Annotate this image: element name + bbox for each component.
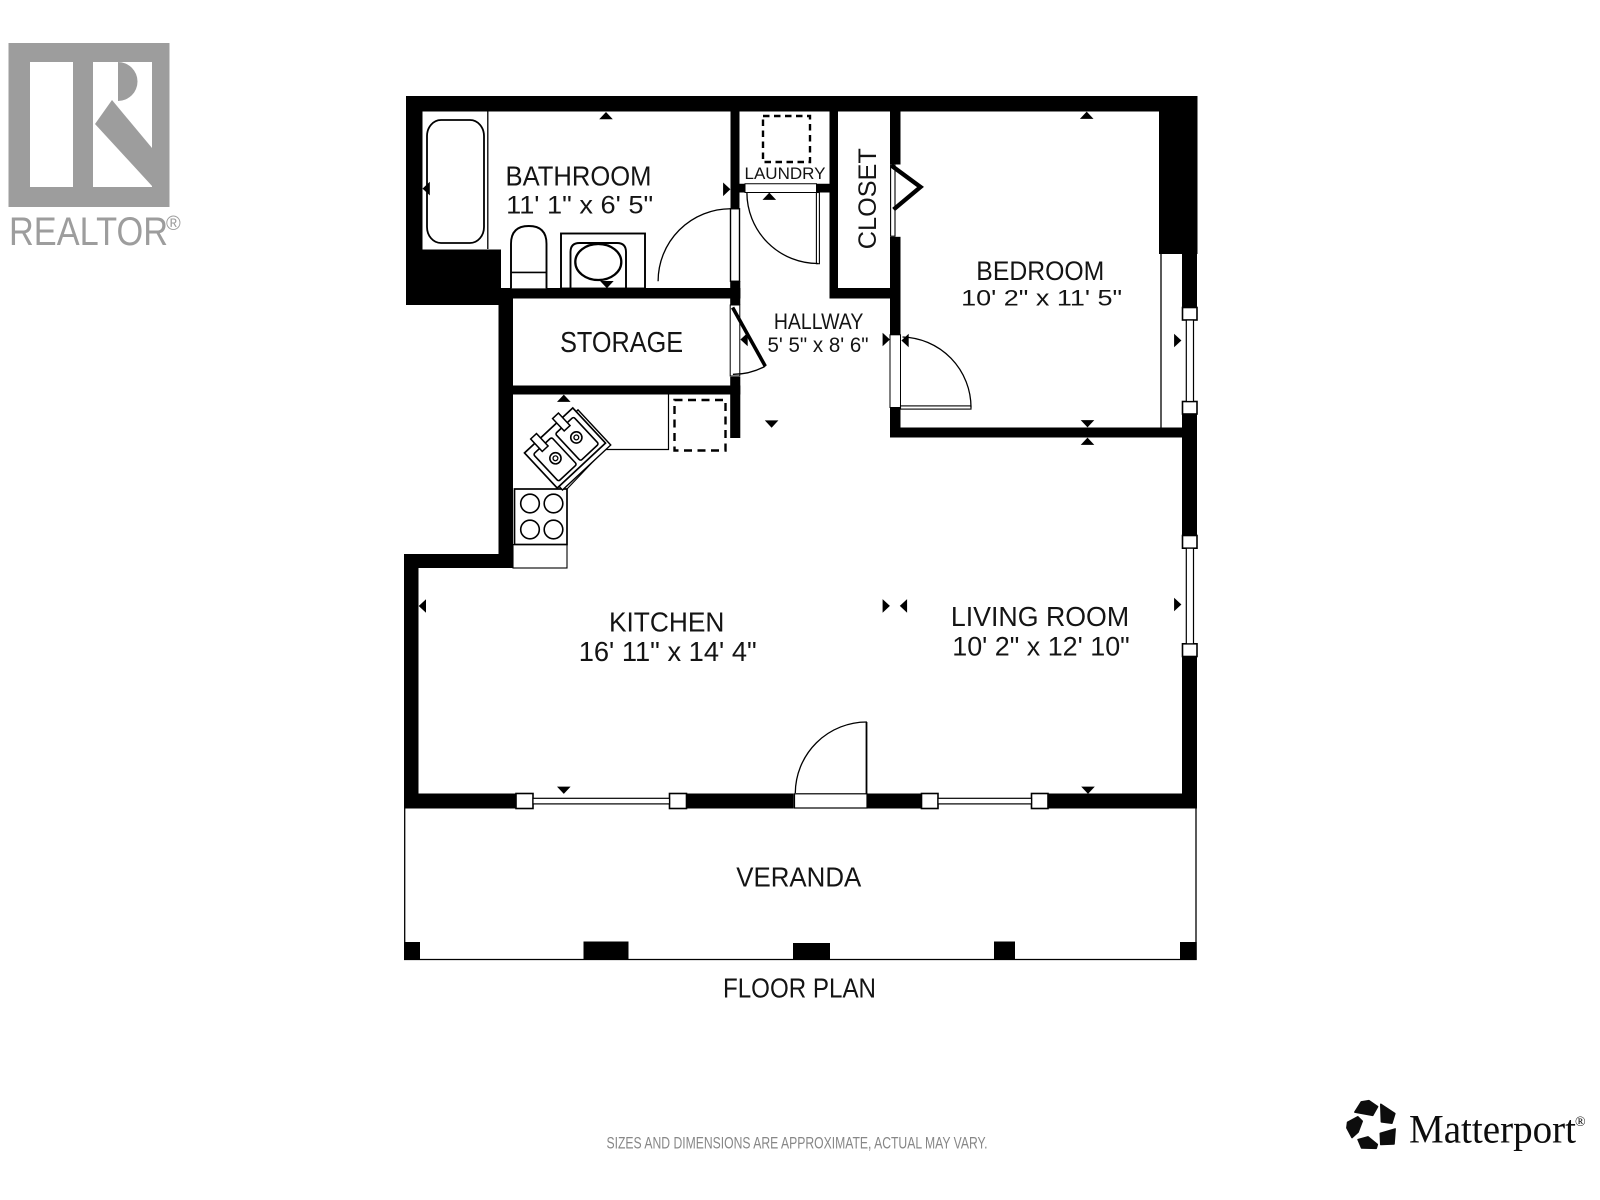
svg-text:5' 5" x 8' 6": 5' 5" x 8' 6" xyxy=(768,334,869,357)
svg-text:LAUNDRY: LAUNDRY xyxy=(745,164,826,183)
svg-text:BATHROOM: BATHROOM xyxy=(506,161,652,192)
svg-text:®: ® xyxy=(166,213,181,235)
svg-text:Matterport: Matterport xyxy=(1409,1107,1576,1152)
svg-text:10' 2" x 11' 5": 10' 2" x 11' 5" xyxy=(961,285,1122,310)
svg-text:REALTOR: REALTOR xyxy=(9,210,168,254)
svg-text:FLOOR PLAN: FLOOR PLAN xyxy=(723,972,876,1003)
svg-text:11' 1" x 6' 5": 11' 1" x 6' 5" xyxy=(506,192,653,220)
svg-text:SIZES AND DIMENSIONS ARE APPRO: SIZES AND DIMENSIONS ARE APPROXIMATE, AC… xyxy=(607,1134,988,1153)
svg-text:VERANDA: VERANDA xyxy=(736,861,861,892)
svg-text:KITCHEN: KITCHEN xyxy=(609,607,725,638)
svg-text:CLOSET: CLOSET xyxy=(854,148,882,249)
svg-text:10' 2" x 12' 10": 10' 2" x 12' 10" xyxy=(952,631,1130,661)
svg-text:BEDROOM: BEDROOM xyxy=(976,256,1104,286)
svg-text:HALLWAY: HALLWAY xyxy=(774,309,864,334)
svg-text:LIVING ROOM: LIVING ROOM xyxy=(951,601,1129,632)
svg-text:®: ® xyxy=(1575,1115,1586,1130)
svg-text:STORAGE: STORAGE xyxy=(560,327,683,359)
svg-text:16' 11" x 14' 4": 16' 11" x 14' 4" xyxy=(579,636,757,667)
